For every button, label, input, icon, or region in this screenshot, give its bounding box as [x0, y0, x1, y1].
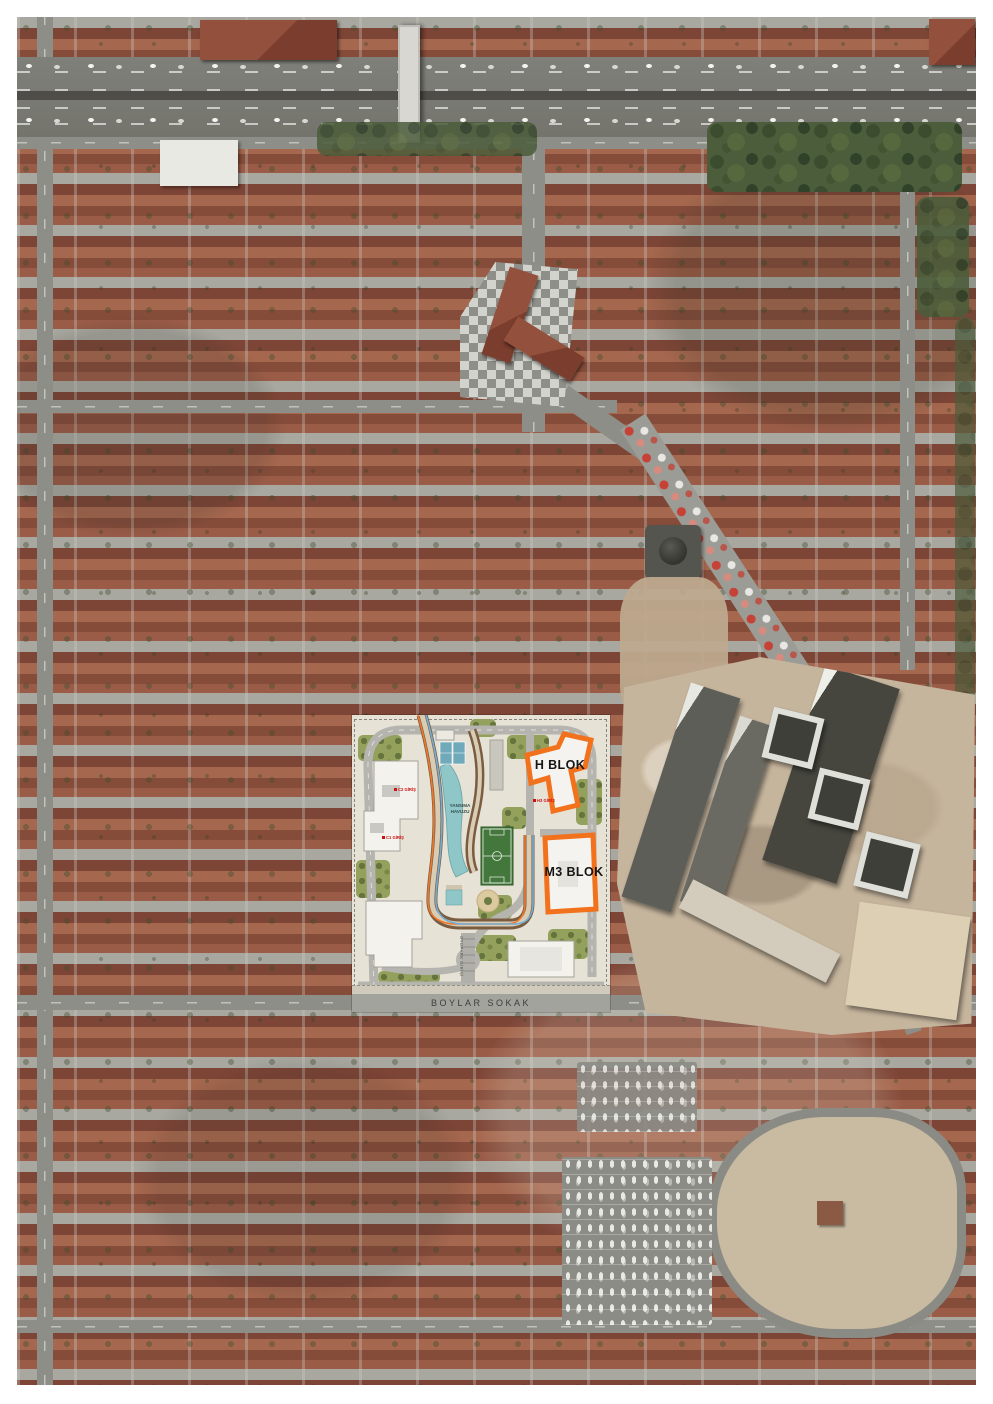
construction-site [617, 657, 975, 1035]
parking-ramp-label: OTOPARK GİRİŞİ [459, 936, 464, 982]
pool-label-line2: HAVUZU [451, 809, 470, 814]
boylar-sokak-band: BOYLAR SOKAK [352, 994, 610, 1012]
promenade-path [418, 715, 533, 924]
entrance-label-c2: C2 GİRİŞ [394, 787, 416, 792]
building-north-slab [490, 740, 503, 790]
football-field [481, 827, 513, 885]
reflecting-pool [440, 763, 468, 877]
kiosk [436, 730, 454, 740]
parking-lot [562, 1157, 712, 1325]
tower-block [853, 831, 921, 899]
m3-block-label: M3 BLOK [534, 865, 614, 879]
small-pool [446, 890, 462, 905]
open-lot [717, 1117, 957, 1329]
trees-area [317, 122, 537, 156]
mosque [645, 525, 701, 579]
road-east-vertical [900, 130, 915, 670]
pool-deck [446, 885, 462, 890]
long-roof-building [200, 20, 337, 60]
highway-median [17, 91, 976, 100]
hip-roof-building [929, 19, 975, 65]
screenshot-root: { "site_plan": { "h_block_label": "H BLO… [0, 0, 993, 1404]
entrance-label-c1: C1 GİRİŞ [382, 835, 404, 840]
low-slab-building [679, 879, 841, 982]
plan-sw-road [382, 967, 464, 972]
aerial-photo: H BLOK M3 BLOK YANSIMA HAVUZU C2 GİRİŞ C… [17, 17, 976, 1385]
trees-area [955, 317, 975, 737]
trees-area [917, 197, 969, 317]
lot-building [817, 1201, 843, 1225]
h-block-label: H BLOK [520, 758, 600, 772]
highway-lane-line [17, 107, 976, 109]
highway-traffic [17, 63, 976, 70]
parking-lot [577, 1062, 697, 1132]
road-west-vertical [37, 17, 53, 1385]
site-plan-overlay: H BLOK M3 BLOK YANSIMA HAVUZU C2 GİRİŞ C… [352, 715, 610, 1012]
white-hall-building [160, 140, 238, 186]
building-southwest [366, 901, 422, 967]
circular-plaza [477, 890, 499, 912]
tennis-courts [440, 742, 465, 764]
trees-area [707, 122, 962, 192]
paved-plaza [845, 902, 970, 1021]
roof-detail [520, 947, 562, 971]
roof-detail [370, 823, 384, 833]
entrance-label-h3: H3 GİRİŞ [533, 798, 555, 803]
reflecting-pool-label: YANSIMA HAVUZU [438, 803, 482, 814]
highway-lane-line [17, 71, 976, 73]
plan-sidewalk [352, 985, 610, 994]
pool-label-line1: YANSIMA [450, 803, 471, 808]
